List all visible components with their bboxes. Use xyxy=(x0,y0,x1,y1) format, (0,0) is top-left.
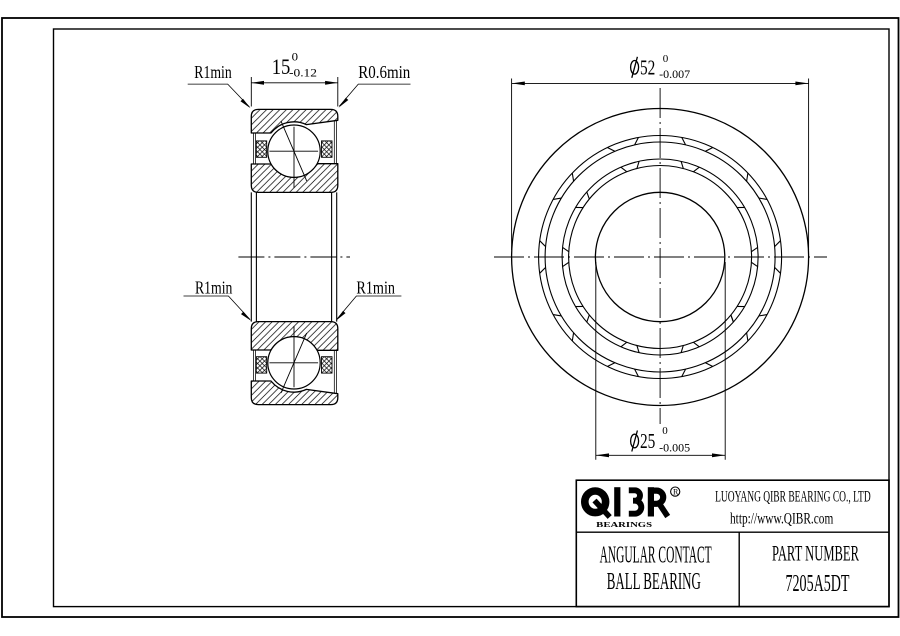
svg-text:0: 0 xyxy=(663,53,669,65)
svg-text:http://www.QIBR.com: http://www.QIBR.com xyxy=(730,511,833,528)
svg-text:BALL BEARING: BALL BEARING xyxy=(607,569,701,595)
svg-text:R0.6min: R0.6min xyxy=(358,62,410,82)
svg-text:LUOYANG QIBR BEARING CO., LTD: LUOYANG QIBR BEARING CO., LTD xyxy=(715,488,871,505)
svg-text:52: 52 xyxy=(640,56,655,80)
svg-text:-0.005: -0.005 xyxy=(659,443,690,455)
svg-text:-0.12: -0.12 xyxy=(289,68,317,80)
svg-text:25: 25 xyxy=(640,429,655,453)
svg-text:0: 0 xyxy=(292,52,299,64)
svg-text:PART NUMBER: PART NUMBER xyxy=(772,541,859,566)
svg-text:R: R xyxy=(673,488,679,497)
svg-text:-0.007: -0.007 xyxy=(659,69,690,81)
svg-text:7205A5DT: 7205A5DT xyxy=(786,571,850,597)
svg-text:R1min: R1min xyxy=(195,278,232,298)
svg-text:BEARINGS: BEARINGS xyxy=(596,520,652,529)
svg-text:ANGULAR CONTACT: ANGULAR CONTACT xyxy=(600,542,712,568)
svg-text:R1min: R1min xyxy=(194,62,231,82)
svg-text:R1min: R1min xyxy=(356,278,395,298)
svg-text:15: 15 xyxy=(272,54,291,79)
svg-text:0: 0 xyxy=(662,425,668,437)
